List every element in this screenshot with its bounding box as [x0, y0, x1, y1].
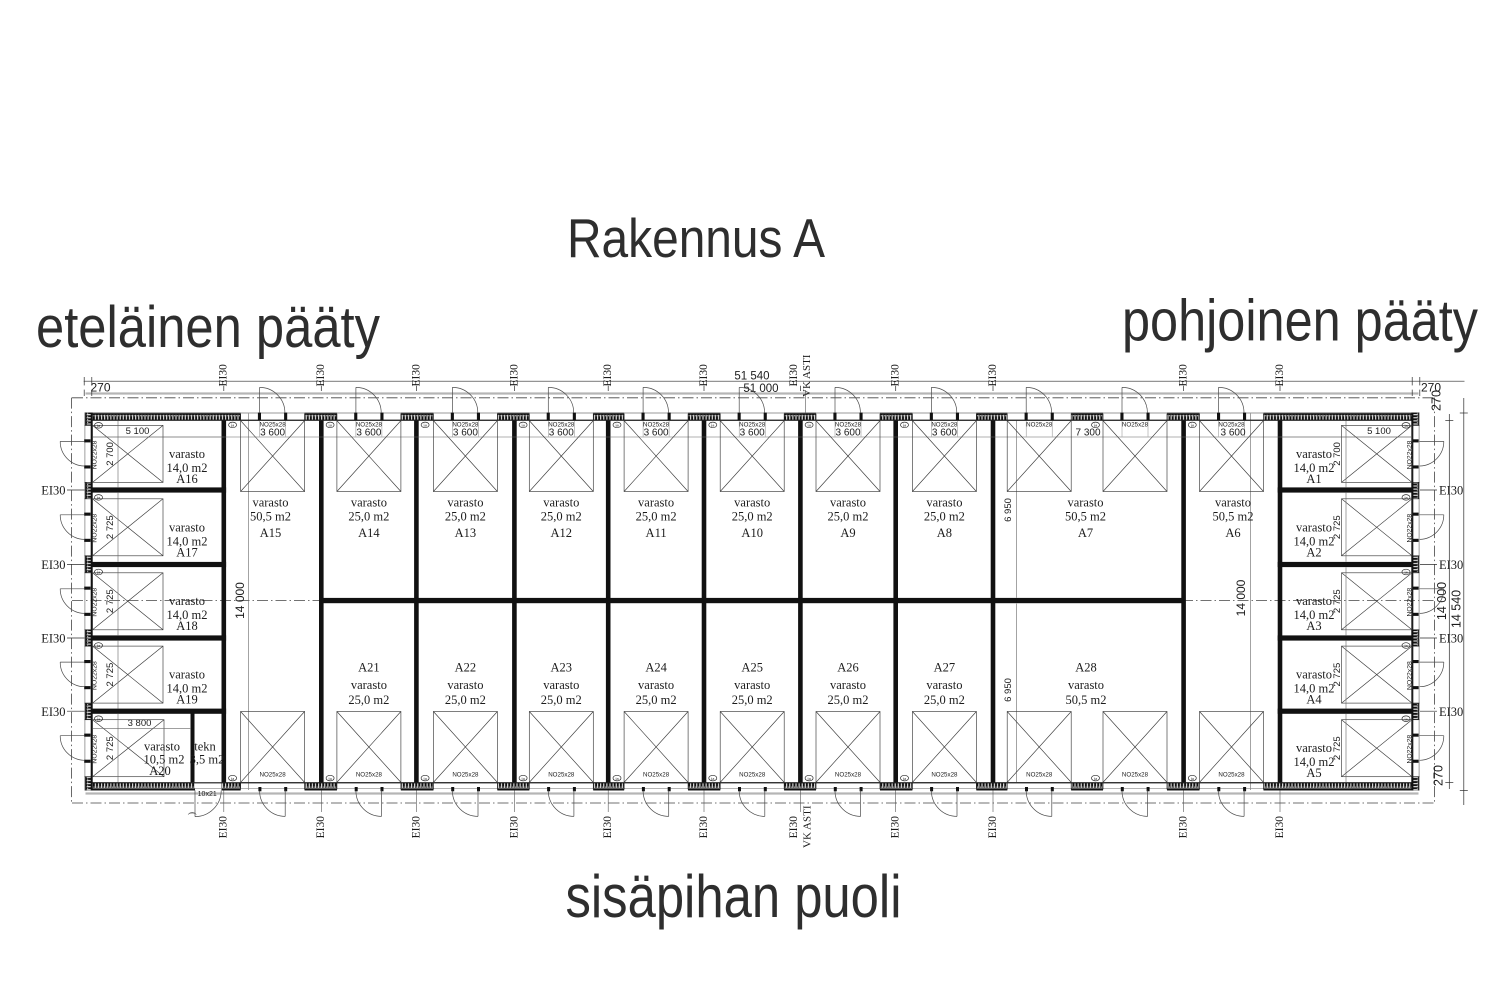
svg-text:2 725: 2 725: [105, 663, 116, 687]
svg-text:EI30: EI30: [890, 364, 902, 387]
svg-text:EI30: EI30: [1439, 705, 1463, 719]
svg-text:NO25x28: NO25x28: [356, 771, 383, 778]
svg-text:varasto: varasto: [447, 496, 483, 510]
svg-text:EI30: EI30: [41, 484, 65, 498]
svg-text:NO22x28: NO22x28: [1407, 588, 1414, 617]
svg-text:EI30: EI30: [218, 816, 230, 839]
svg-text:NO22x28: NO22x28: [1407, 735, 1414, 764]
svg-text:NO22x28: NO22x28: [1407, 514, 1414, 543]
svg-text:VK ASTI: VK ASTI: [801, 354, 813, 397]
svg-text:2 700: 2 700: [105, 442, 116, 466]
svg-text:A4: A4: [1306, 693, 1322, 707]
svg-text:ja: ja: [520, 776, 524, 781]
svg-text:A24: A24: [645, 661, 667, 675]
svg-text:varasto: varasto: [1215, 496, 1251, 510]
svg-text:varasto: varasto: [926, 496, 962, 510]
svg-text:ja: ja: [422, 776, 426, 781]
svg-text:A17: A17: [176, 546, 198, 560]
svg-text:EI30: EI30: [41, 705, 65, 719]
svg-text:25,0 m2: 25,0 m2: [732, 693, 773, 707]
svg-text:14 000: 14 000: [233, 582, 247, 619]
svg-text:ja: ja: [327, 423, 331, 428]
svg-text:EI30: EI30: [218, 364, 230, 387]
svg-text:10x21: 10x21: [198, 791, 217, 798]
svg-text:ja: ja: [1190, 776, 1194, 781]
svg-text:A20: A20: [149, 764, 171, 778]
svg-text:25,0 m2: 25,0 m2: [348, 693, 389, 707]
svg-text:A10: A10: [741, 526, 763, 540]
svg-text:EI30: EI30: [1274, 364, 1286, 387]
svg-text:varasto: varasto: [169, 447, 205, 461]
svg-text:ja: ja: [230, 776, 234, 781]
svg-text:EI30: EI30: [1439, 484, 1463, 498]
svg-text:A13: A13: [455, 526, 477, 540]
svg-text:varasto: varasto: [169, 594, 205, 608]
svg-text:25,0 m2: 25,0 m2: [828, 510, 869, 524]
svg-text:VK ASTI: VK ASTI: [801, 805, 813, 848]
svg-text:varasto: varasto: [1067, 496, 1103, 510]
svg-text:varasto: varasto: [1296, 521, 1332, 535]
svg-text:EI30: EI30: [987, 364, 999, 387]
svg-text:EI30: EI30: [788, 364, 800, 387]
svg-text:25,0 m2: 25,0 m2: [445, 510, 486, 524]
svg-text:ja: ja: [614, 776, 618, 781]
svg-text:varasto: varasto: [1296, 741, 1332, 755]
svg-text:50,5 m2: 50,5 m2: [250, 510, 291, 524]
svg-text:EI30: EI30: [1439, 558, 1463, 572]
svg-text:NO22x28: NO22x28: [1407, 440, 1414, 469]
svg-text:3 600: 3 600: [1220, 427, 1245, 438]
svg-text:varasto: varasto: [351, 678, 387, 692]
svg-text:ja: ja: [710, 423, 714, 428]
svg-text:varasto: varasto: [1068, 678, 1104, 692]
svg-text:EI30: EI30: [1178, 816, 1190, 839]
svg-text:5 100: 5 100: [126, 426, 150, 437]
svg-text:25,0 m2: 25,0 m2: [732, 510, 773, 524]
svg-text:25,0 m2: 25,0 m2: [924, 693, 965, 707]
svg-text:sisäpihan puoli: sisäpihan puoli: [566, 863, 902, 930]
svg-text:varasto: varasto: [734, 678, 770, 692]
svg-text:2 725: 2 725: [105, 515, 116, 539]
svg-text:varasto: varasto: [734, 496, 770, 510]
svg-text:EI30: EI30: [41, 632, 65, 646]
svg-text:tekn: tekn: [194, 740, 216, 754]
svg-text:50,5 m2: 50,5 m2: [1065, 510, 1106, 524]
svg-text:A22: A22: [455, 661, 477, 675]
svg-text:14 000: 14 000: [1234, 579, 1248, 616]
svg-text:14 540: 14 540: [1450, 590, 1464, 628]
svg-text:varasto: varasto: [926, 678, 962, 692]
svg-text:EI30: EI30: [890, 816, 902, 839]
svg-text:ja: ja: [230, 423, 234, 428]
svg-text:Rakennus A: Rakennus A: [567, 207, 825, 269]
svg-text:25,0 m2: 25,0 m2: [541, 693, 582, 707]
svg-text:A3: A3: [1306, 619, 1321, 633]
svg-text:A28: A28: [1075, 661, 1097, 675]
svg-text:3 600: 3 600: [932, 427, 957, 438]
svg-text:EI30: EI30: [410, 364, 422, 387]
svg-text:NO25x28: NO25x28: [1026, 771, 1053, 778]
svg-text:50,5 m2: 50,5 m2: [1213, 510, 1254, 524]
svg-text:5 100: 5 100: [1367, 426, 1391, 437]
svg-text:varasto: varasto: [638, 496, 674, 510]
svg-text:A26: A26: [837, 661, 859, 675]
svg-text:EI30: EI30: [788, 816, 800, 839]
svg-text:270: 270: [90, 380, 110, 394]
svg-text:50,5 m2: 50,5 m2: [1066, 693, 1107, 707]
svg-text:EI30: EI30: [508, 816, 520, 839]
svg-text:25,0 m2: 25,0 m2: [445, 693, 486, 707]
svg-text:NO25x28: NO25x28: [1026, 422, 1053, 429]
svg-text:25,0 m2: 25,0 m2: [636, 510, 677, 524]
svg-text:EI30: EI30: [1178, 364, 1190, 387]
svg-text:NO25x28: NO25x28: [1122, 771, 1149, 778]
svg-text:ja: ja: [1093, 776, 1097, 781]
svg-text:varasto: varasto: [351, 496, 387, 510]
svg-text:EI30: EI30: [508, 364, 520, 387]
svg-text:varasto: varasto: [252, 496, 288, 510]
svg-text:7 300: 7 300: [1075, 427, 1100, 438]
svg-text:3 800: 3 800: [128, 718, 152, 729]
svg-text:A9: A9: [840, 526, 855, 540]
svg-text:ja: ja: [96, 495, 100, 500]
svg-text:EI30: EI30: [1274, 816, 1286, 839]
svg-text:14 000: 14 000: [1435, 582, 1449, 620]
svg-text:ja: ja: [1403, 495, 1407, 500]
svg-text:51 540: 51 540: [734, 370, 769, 382]
svg-text:NO25x28: NO25x28: [1218, 771, 1245, 778]
svg-text:3 600: 3 600: [356, 427, 381, 438]
svg-text:varasto: varasto: [830, 496, 866, 510]
svg-text:NO22x28: NO22x28: [1407, 661, 1414, 690]
svg-text:ja: ja: [520, 423, 524, 428]
svg-text:3 600: 3 600: [549, 427, 574, 438]
svg-text:NO25x28: NO25x28: [548, 771, 575, 778]
svg-text:25,0 m2: 25,0 m2: [924, 510, 965, 524]
svg-text:ja: ja: [96, 716, 100, 721]
svg-text:A23: A23: [551, 661, 573, 675]
svg-text:ja: ja: [96, 570, 100, 575]
svg-text:varasto: varasto: [447, 678, 483, 692]
svg-text:A5: A5: [1306, 766, 1321, 780]
svg-text:varasto: varasto: [543, 678, 579, 692]
svg-text:25,0 m2: 25,0 m2: [828, 693, 869, 707]
svg-text:A7: A7: [1078, 526, 1093, 540]
svg-text:A11: A11: [646, 526, 667, 540]
svg-text:varasto: varasto: [144, 740, 180, 754]
svg-text:A16: A16: [176, 472, 198, 486]
svg-text:varasto: varasto: [169, 668, 205, 682]
svg-text:A25: A25: [741, 661, 763, 675]
svg-text:6 950: 6 950: [1003, 678, 1014, 702]
svg-text:6 950: 6 950: [1003, 498, 1014, 522]
svg-text:ja: ja: [1190, 423, 1194, 428]
svg-text:ja: ja: [902, 423, 906, 428]
svg-text:varasto: varasto: [543, 496, 579, 510]
svg-text:ja: ja: [327, 776, 331, 781]
svg-text:A8: A8: [937, 526, 952, 540]
svg-text:A1: A1: [1306, 472, 1321, 486]
svg-text:A12: A12: [551, 526, 573, 540]
svg-text:A27: A27: [934, 661, 956, 675]
svg-text:ja: ja: [422, 423, 426, 428]
svg-text:3 600: 3 600: [260, 427, 285, 438]
svg-text:3 600: 3 600: [835, 427, 860, 438]
svg-text:ja: ja: [1403, 643, 1407, 648]
svg-text:2 725: 2 725: [105, 736, 116, 760]
svg-text:ja: ja: [710, 776, 714, 781]
svg-text:NO25x28: NO25x28: [452, 771, 479, 778]
svg-text:eteläinen pääty: eteläinen pääty: [36, 295, 380, 360]
svg-text:NO25x28: NO25x28: [739, 771, 766, 778]
svg-text:ja: ja: [1403, 716, 1407, 721]
svg-text:A15: A15: [260, 526, 282, 540]
svg-text:2 725: 2 725: [105, 589, 116, 613]
svg-text:EI30: EI30: [602, 364, 614, 387]
svg-text:varasto: varasto: [1296, 594, 1332, 608]
svg-text:NO25x28: NO25x28: [835, 771, 862, 778]
svg-text:3 600: 3 600: [453, 427, 478, 438]
svg-text:3 600: 3 600: [740, 427, 765, 438]
svg-text:25,0 m2: 25,0 m2: [348, 510, 389, 524]
svg-text:EI30: EI30: [698, 816, 710, 839]
svg-text:3 600: 3 600: [644, 427, 669, 438]
svg-text:A19: A19: [176, 693, 198, 707]
svg-text:ja: ja: [806, 423, 810, 428]
svg-text:ja: ja: [1403, 570, 1407, 575]
svg-text:A6: A6: [1225, 526, 1240, 540]
svg-text:EI30: EI30: [410, 816, 422, 839]
svg-text:NO25x28: NO25x28: [931, 771, 958, 778]
svg-text:25,0 m2: 25,0 m2: [541, 510, 582, 524]
svg-text:25,0 m2: 25,0 m2: [636, 693, 677, 707]
svg-text:A18: A18: [176, 619, 198, 633]
svg-text:A21: A21: [358, 661, 380, 675]
svg-text:EI30: EI30: [41, 558, 65, 572]
svg-text:ja: ja: [806, 776, 810, 781]
svg-text:ja: ja: [614, 423, 618, 428]
svg-text:EI30: EI30: [1439, 632, 1463, 646]
svg-text:A14: A14: [358, 526, 380, 540]
svg-text:EI30: EI30: [698, 364, 710, 387]
svg-text:270: 270: [1429, 390, 1443, 411]
svg-text:270: 270: [1432, 765, 1446, 786]
svg-text:3,5 m2: 3,5 m2: [190, 753, 225, 767]
svg-text:EI30: EI30: [987, 816, 999, 839]
svg-text:ja: ja: [96, 643, 100, 648]
svg-text:EI30: EI30: [602, 816, 614, 839]
svg-text:ja: ja: [902, 776, 906, 781]
svg-text:varasto: varasto: [1296, 668, 1332, 682]
svg-text:varasto: varasto: [1296, 447, 1332, 461]
svg-text:NO25x28: NO25x28: [260, 771, 287, 778]
svg-text:varasto: varasto: [638, 678, 674, 692]
svg-text:ja: ja: [1403, 423, 1407, 428]
svg-text:varasto: varasto: [830, 678, 866, 692]
svg-text:varasto: varasto: [169, 521, 205, 535]
svg-text:pohjoinen pääty: pohjoinen pääty: [1122, 289, 1478, 354]
svg-text:NO25x28: NO25x28: [1122, 422, 1149, 429]
svg-text:EI30: EI30: [315, 816, 327, 839]
svg-text:EI30: EI30: [315, 364, 327, 387]
svg-text:ja: ja: [96, 423, 100, 428]
svg-text:A2: A2: [1306, 546, 1321, 560]
svg-text:NO25x28: NO25x28: [643, 771, 670, 778]
